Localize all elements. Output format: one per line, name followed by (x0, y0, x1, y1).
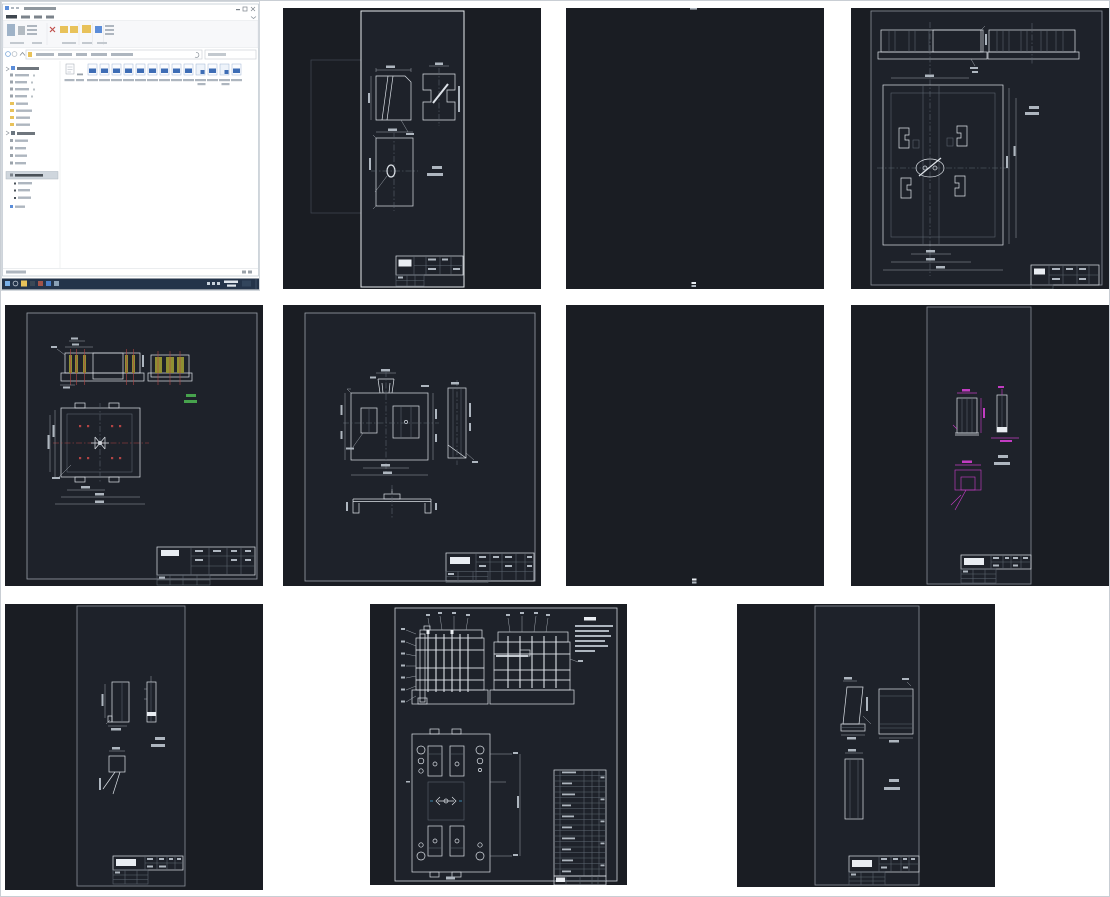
paste-icon (18, 26, 25, 35)
folder-icon (10, 123, 14, 126)
drawing-name-text (852, 860, 872, 867)
pin-quickaccess-icon (7, 24, 15, 36)
app-icon (30, 281, 35, 286)
note-text (1029, 106, 1039, 109)
move-to-icon (60, 26, 68, 33)
tab-share (34, 16, 42, 19)
drawing-name-text (450, 557, 470, 564)
cad-drawing (5, 604, 263, 890)
tray-input-indicator (242, 281, 251, 287)
document-icon (66, 64, 74, 74)
list-view-icon (242, 271, 246, 274)
folder-icon (10, 116, 14, 119)
thumbnail-blank-sheet-1[interactable] (566, 8, 824, 289)
notes-title-text (584, 617, 596, 621)
cad-drawing (566, 8, 824, 289)
note-text (998, 455, 1008, 458)
drawing-name-text (1034, 269, 1045, 275)
sheet-border (27, 313, 257, 579)
ribbon (3, 21, 258, 48)
new-folder-icon (82, 25, 91, 33)
drawing-name-text (116, 859, 136, 866)
sheet-border (815, 606, 919, 885)
app-icon (38, 281, 43, 286)
note-text (432, 166, 442, 169)
note-text (155, 737, 165, 740)
cad-drawing (851, 305, 1109, 586)
explorer-screenshot (2, 2, 259, 290)
address-folder-icon (28, 52, 32, 57)
thumbnail-fixed-plate-drawing[interactable] (5, 305, 263, 586)
top-mark (690, 8, 697, 10)
app-icon (46, 281, 51, 286)
explorer-taskbar-icon (21, 281, 27, 287)
cad-drawing (5, 305, 263, 586)
clock-text (224, 281, 238, 284)
thumbnail-gallery (0, 0, 1110, 897)
thumbnail-insert-part-white[interactable] (5, 604, 263, 890)
sheet-border (927, 307, 1031, 584)
item-count-text (6, 271, 26, 274)
drawing-name-text (964, 558, 984, 565)
taskbar (2, 279, 259, 290)
drawing-name-text (556, 878, 565, 883)
sheet-border (305, 313, 535, 581)
minimize-button (236, 9, 240, 10)
green-note-text (186, 394, 196, 397)
properties-icon (95, 26, 102, 33)
explorer-icon (5, 6, 9, 10)
sheet-border (77, 606, 185, 886)
cad-drawing (283, 305, 541, 586)
app-icon (54, 281, 59, 286)
breadcrumb (36, 53, 54, 56)
copy-to-icon (70, 26, 78, 33)
thumbnail-blank-sheet-2[interactable] (566, 305, 824, 586)
cad-drawing (566, 305, 824, 586)
this-pc-icon (11, 131, 15, 135)
thumbnail-mold-assembly-drawing[interactable] (370, 604, 627, 885)
drawing-name-text (399, 260, 412, 267)
drawing-name-text (161, 550, 179, 556)
quick-access-icon (11, 66, 15, 70)
thumbnail-explorer-desktop[interactable] (2, 2, 259, 290)
search-placeholder-text (208, 53, 226, 56)
tab-file (6, 15, 17, 19)
shortcut-item (77, 74, 83, 76)
thumbnail-die-plate-drawing[interactable] (851, 8, 1109, 289)
folder-icon (10, 109, 14, 112)
cad-drawing (370, 604, 627, 885)
folder-icon (10, 102, 14, 105)
sheet-border (361, 11, 464, 287)
thumbnail-wedge-part-drawing[interactable] (737, 604, 995, 887)
thumbnail-view-icon (248, 271, 252, 274)
thumbnail-stripper-plate-drawing[interactable] (283, 305, 541, 586)
thumbnail-insert-part-magenta[interactable] (851, 305, 1109, 586)
cad-drawing (283, 8, 541, 289)
window-title-text (24, 7, 56, 10)
start-button-icon (5, 281, 10, 286)
note-text (889, 779, 899, 782)
address-bar-row (6, 50, 256, 59)
tab-view (46, 16, 54, 19)
thumbnail-punch-part-drawing[interactable] (283, 8, 541, 289)
cad-drawing (737, 604, 995, 887)
tab-home (21, 16, 30, 19)
cad-drawing (851, 8, 1109, 289)
